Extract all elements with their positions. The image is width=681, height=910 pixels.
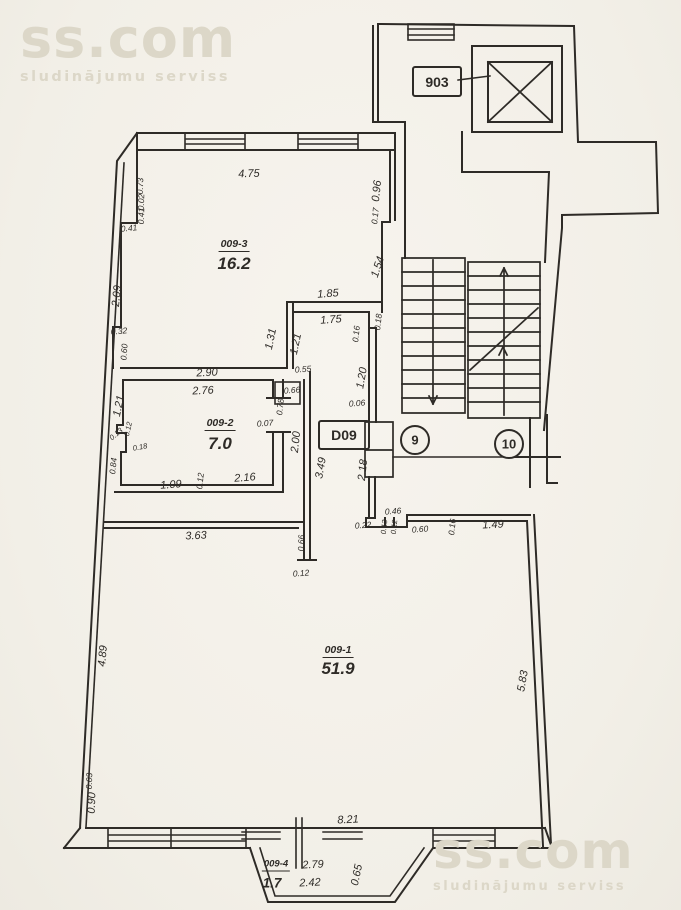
unit-903-label: 903 [412,66,462,97]
dim-label: 1.09 [160,478,182,491]
top-door-hatch [408,24,454,40]
floor-plan: ss.com sludinājumu serviss [0,0,681,910]
dim-label: 4.89 [96,645,110,667]
room-code: 009-3 [219,238,250,252]
dim-label: 0.46 [384,505,401,516]
dim-label: 0.60 [411,523,428,534]
dim-label: 0.12 [292,567,309,578]
dim-label: 0.17 [369,207,381,225]
window [185,133,245,150]
dim-label: 0.60 [118,343,129,360]
dim-label: 8.21 [337,813,359,826]
dim-label: 2.42 [299,876,321,889]
dim-label: 2.79 [302,858,324,871]
dim-label: 0.73 [135,178,146,195]
watermark-bottom-right: ss.com sludinājumu serviss [433,826,634,894]
elevator-shaft [458,46,562,132]
dim-label: 2.76 [192,384,214,397]
window [108,828,246,848]
dim-label: 3.63 [185,529,207,542]
dim-label: 0.55 [294,363,311,374]
door-d09-label: D09 [318,420,370,450]
dim-label: 0.78 [274,398,286,416]
dim-label: 0.66 [296,535,307,552]
stair-mark-10: 10 [502,437,516,452]
dim-label: 2.00 [289,431,303,454]
dim-label: 2.16 [234,471,256,484]
dim-label: 0.06 [348,397,365,408]
room3-top-wall [137,133,395,150]
room-code: 009-4 [262,859,290,872]
outer-left-wall [80,133,137,828]
dim-label: 0.66 [283,384,300,395]
dim-label: 2.90 [196,366,218,379]
dim-label: 0.12 [389,519,399,534]
dim-label: 0.16 [350,325,362,343]
floorplan-drawing [0,0,681,910]
ss-com-logo: ss.com [433,826,634,876]
staircase [402,258,540,418]
dim-label: 0.16 [446,518,458,536]
dim-label: 0.13 [379,519,389,534]
window [298,133,358,150]
dim-label: 1.85 [317,287,339,300]
dim-label: 1.49 [482,518,504,531]
dim-label: 2.18 [356,459,370,482]
dim-label: 0.07 [256,417,273,428]
down-arrow [429,260,437,404]
dim-label: 0.90 [86,792,99,814]
ss-com-tagline: sludinājumu serviss [433,879,634,894]
dim-label: 2.09 [110,285,124,308]
dim-label: 0.96 [370,180,384,203]
dim-label: 0.41 [120,222,137,233]
room-code: 009-1 [323,644,354,658]
dim-label: 4.75 [238,168,260,181]
room-code: 009-2 [205,417,236,431]
dim-label: 0.03 [84,773,95,790]
stair-mark-9: 9 [411,433,418,448]
dim-label: 0.12 [194,472,206,490]
dim-label: 0.32 [110,325,127,336]
room-area: 7.0 [208,434,232,454]
label-leader-line [458,76,490,80]
room-area: 51.9 [321,659,354,679]
dim-label: 0.18 [372,313,384,331]
dim-label: 0.84 [107,457,119,475]
room-area: 16.2 [217,254,250,274]
room-area: 1.7 [263,876,282,891]
dim-label: 0.22 [354,519,371,530]
dim-label: 1.75 [320,313,342,326]
